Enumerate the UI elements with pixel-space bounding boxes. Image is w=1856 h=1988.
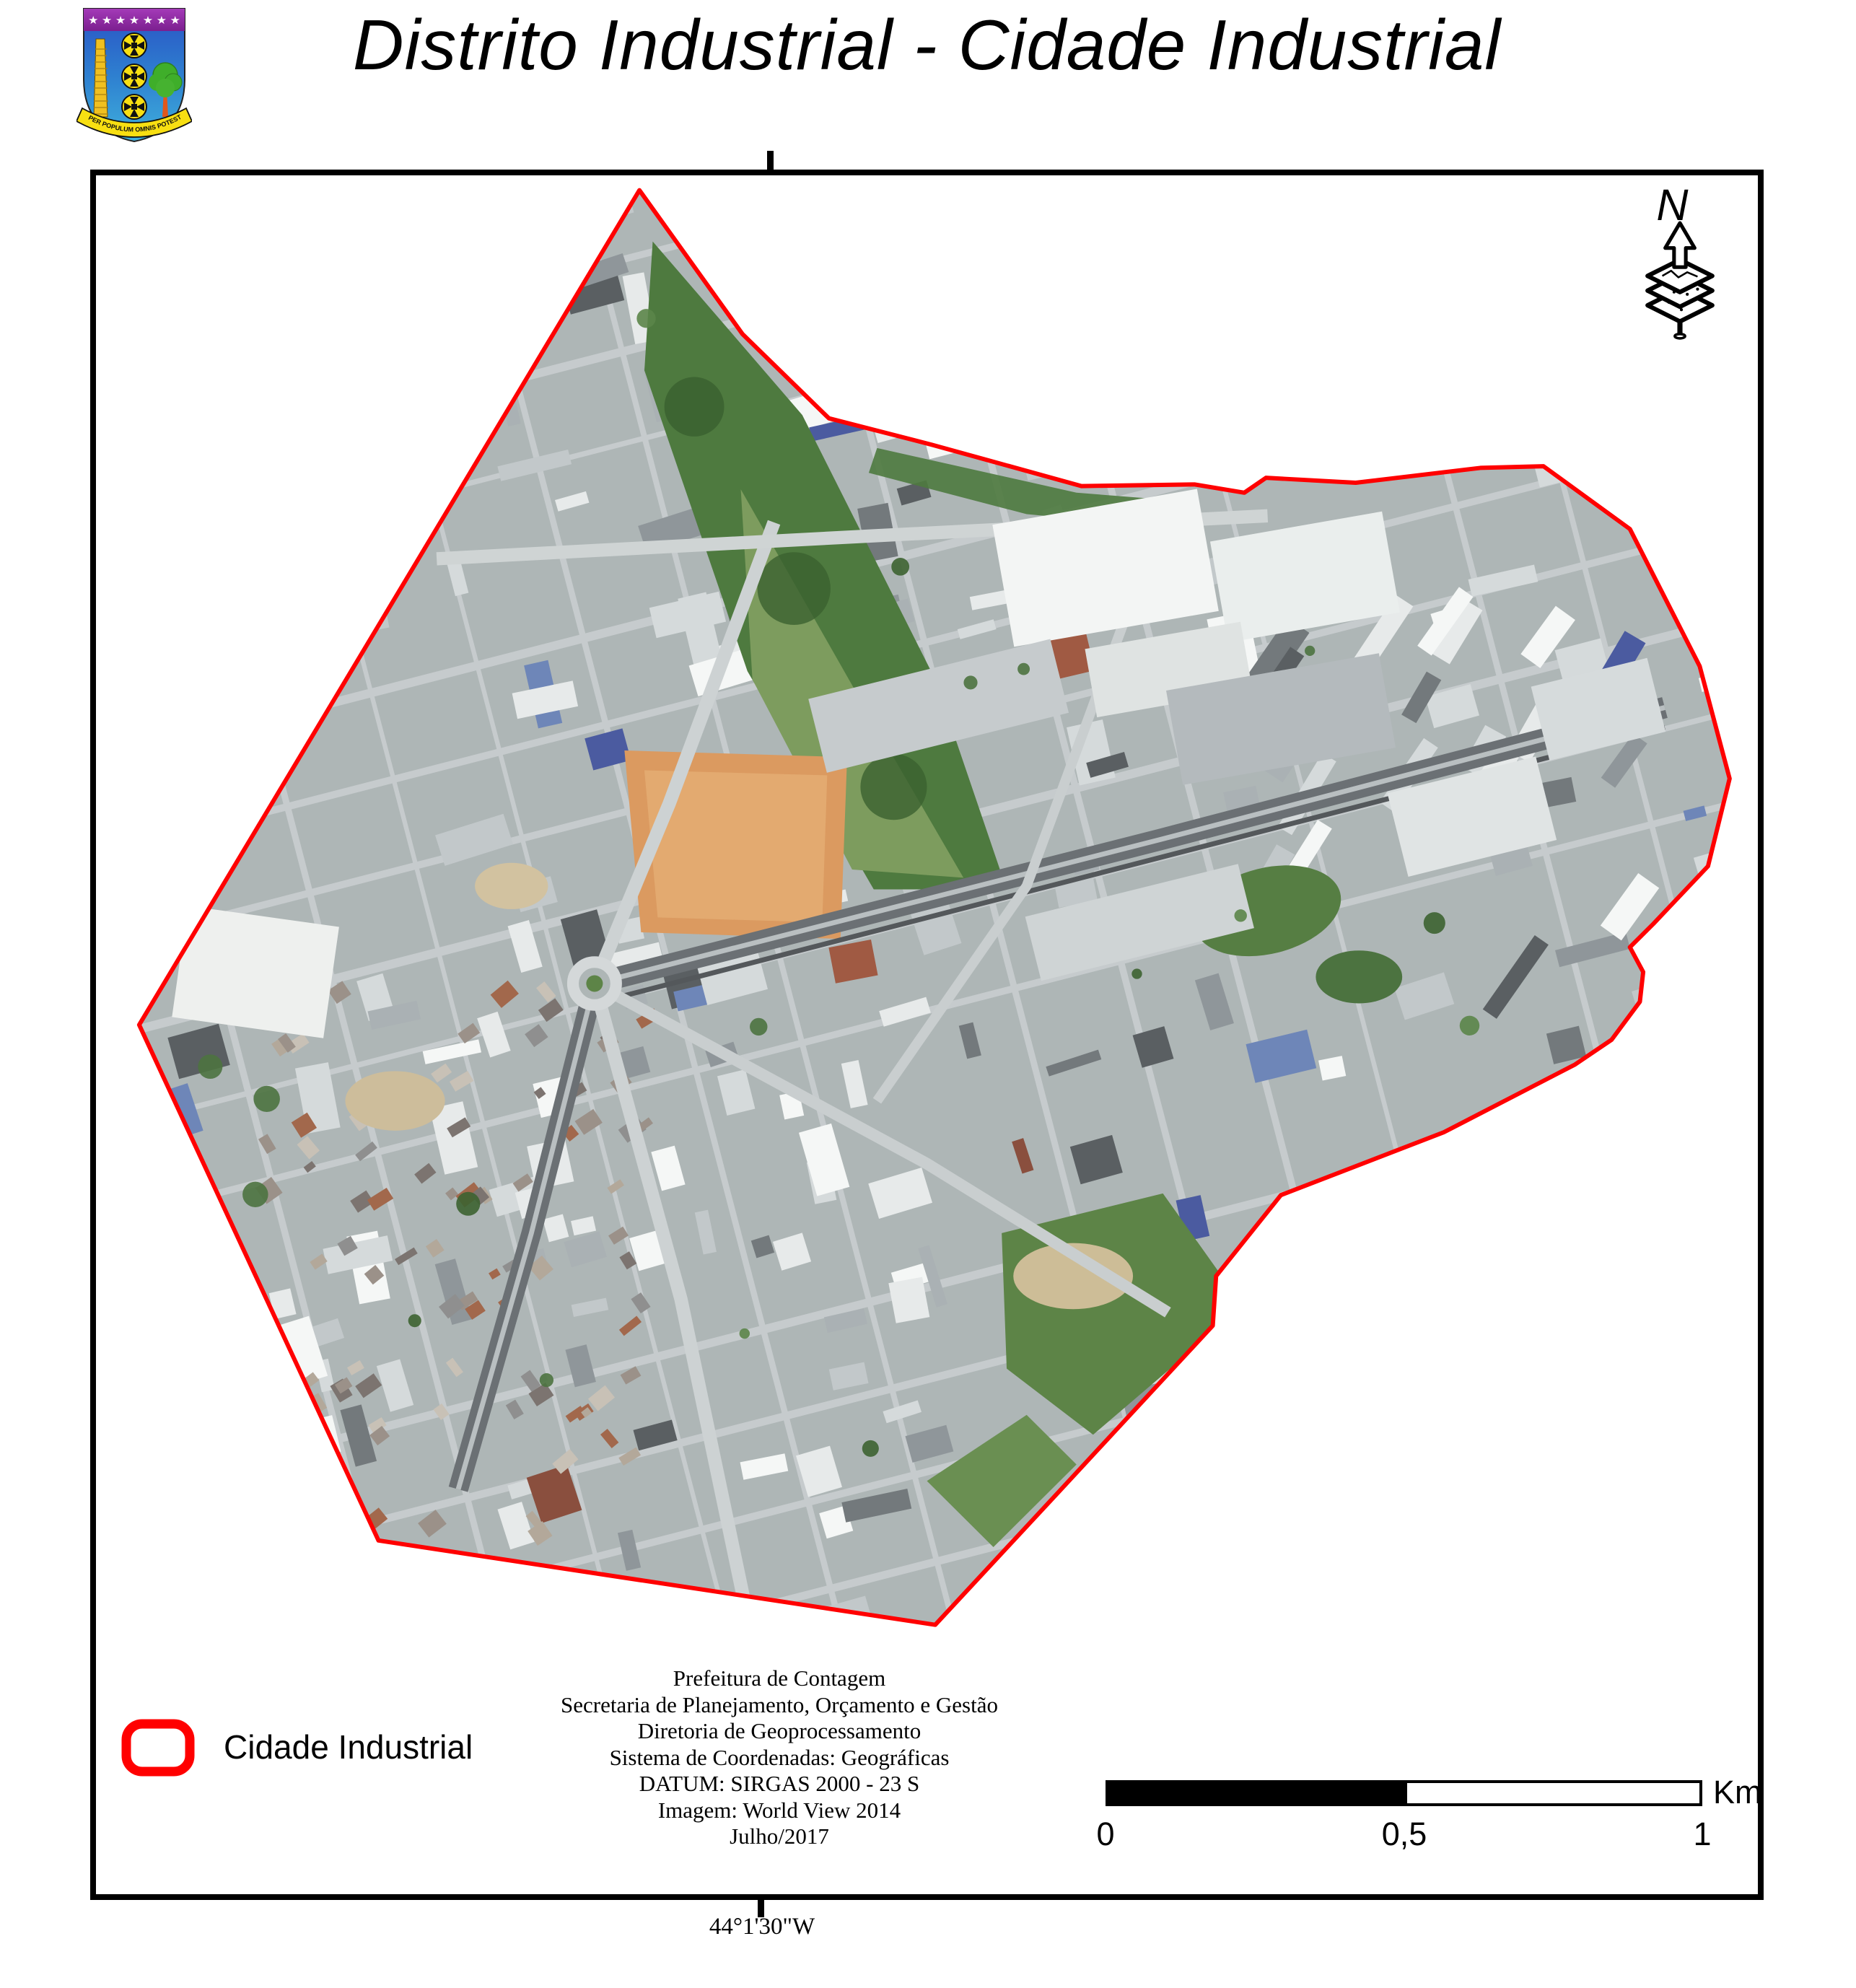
scalebar-segment-filled (1106, 1780, 1404, 1806)
satellite-imagery (96, 175, 1758, 1894)
credit-line: Prefeitura de Contagem (433, 1665, 1126, 1692)
scalebar-tick-05: 0,5 (1361, 1816, 1448, 1853)
credit-line: DATUM: SIRGAS 2000 - 23 S (433, 1771, 1126, 1797)
graticule-tick-top (767, 151, 774, 171)
map-sheet: { "title": "Distrito Industrial - Cidade… (0, 0, 1856, 1988)
credit-line: Diretoria de Geoprocessamento (433, 1718, 1126, 1745)
credit-line: Sistema de Coordenadas: Geográficas (433, 1745, 1126, 1772)
longitude-label: 44°1'30"W (618, 1914, 906, 1940)
legend-swatch (121, 1719, 195, 1777)
satellite-map (96, 175, 1758, 1894)
contagem-crest-logo: ★ ★ ★ ★ ★ ★ ★ PER POPULUM OMNIS POTESTAS… (76, 1, 192, 146)
credit-line: Imagem: World View 2014 (433, 1797, 1126, 1824)
north-arrow-icon: N (1635, 180, 1725, 342)
credit-line: Julho/2017 (433, 1823, 1126, 1850)
map-credits: Prefeitura de Contagem Secretaria de Pla… (433, 1665, 1126, 1850)
scalebar-tick-0: 0 (1077, 1816, 1134, 1853)
credit-line: Secretaria de Planejamento, Orçamento e … (433, 1692, 1126, 1719)
scalebar-tick-1: 1 (1673, 1816, 1731, 1853)
page-title: Distrito Industrial - Cidade Industrial (90, 4, 1764, 86)
north-label: N (1656, 180, 1689, 229)
scalebar-segment-empty (1404, 1780, 1702, 1806)
crest-cross-disc (122, 33, 146, 58)
crest-cross-disc (122, 95, 146, 119)
crest-cross-disc (122, 64, 146, 89)
crest-stars: ★ ★ ★ ★ ★ ★ ★ (88, 14, 180, 27)
scalebar-unit: Km (1713, 1774, 1762, 1811)
